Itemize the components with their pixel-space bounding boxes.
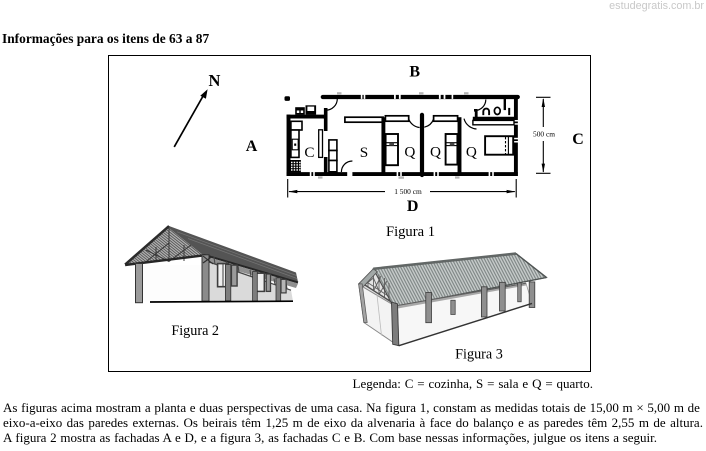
- svg-text:C: C: [572, 131, 584, 148]
- svg-text:N: N: [209, 71, 221, 90]
- svg-text:Q: Q: [404, 144, 415, 161]
- svg-text:B: B: [409, 64, 420, 81]
- svg-text:C: C: [304, 144, 314, 161]
- svg-text:Figura 3: Figura 3: [455, 347, 503, 363]
- svg-text:A: A: [246, 138, 258, 155]
- svg-text:Q: Q: [430, 144, 441, 161]
- svg-text:Figura 1: Figura 1: [386, 224, 435, 240]
- svg-text:D: D: [407, 198, 419, 215]
- svg-text:Figura 2: Figura 2: [171, 323, 219, 339]
- svg-text:1 500 cm: 1 500 cm: [394, 187, 422, 196]
- svg-text:500 cm: 500 cm: [533, 130, 555, 139]
- svg-text:Q: Q: [466, 144, 477, 161]
- svg-text:S: S: [360, 144, 368, 161]
